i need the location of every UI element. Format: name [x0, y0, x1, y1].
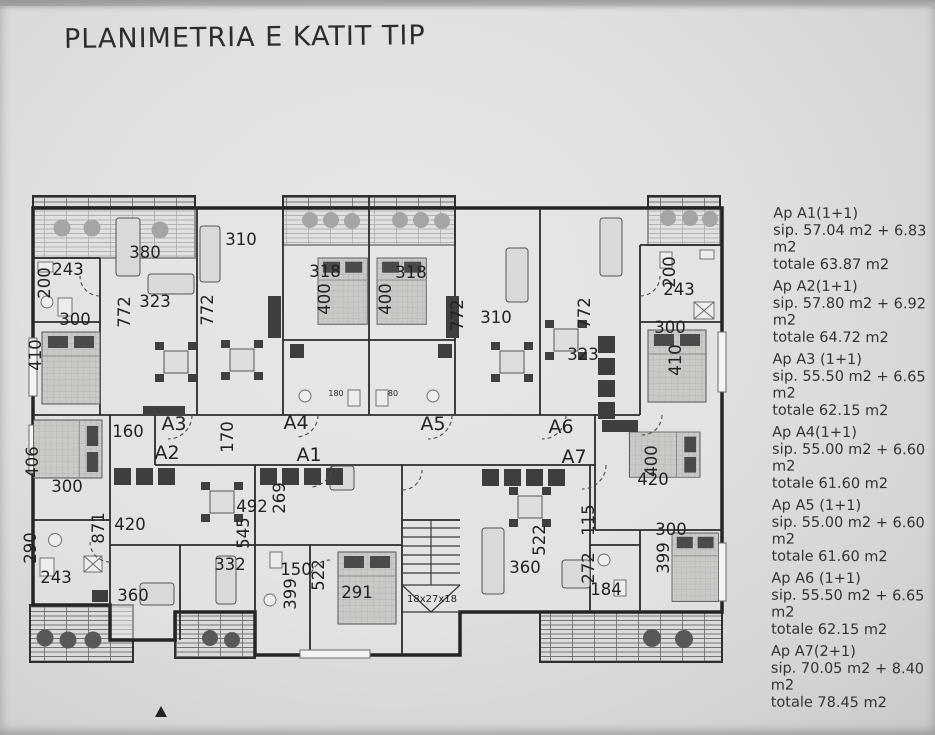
- apartment-label: A6: [548, 416, 573, 438]
- apartment-area-unit: m2: [773, 240, 933, 258]
- dimension-label: 772: [198, 294, 217, 326]
- dimension-label: 180: [328, 389, 343, 398]
- dimension-label: 400: [315, 283, 334, 315]
- dimension-label: 300: [655, 520, 687, 539]
- dimension-label: 318: [395, 263, 427, 282]
- apartment-name: Ap A6 (1+1): [771, 571, 931, 589]
- apartment-area-unit: m2: [773, 313, 933, 331]
- apartment-area: sip. 55.50 m2 + 6.65: [772, 369, 932, 387]
- apartment-area: sip. 55.50 m2 + 6.65: [771, 588, 931, 606]
- apartment-label: A3: [161, 413, 186, 435]
- apartment-total: totale 62.15 m2: [772, 403, 932, 421]
- apartment-name: Ap A5 (1+1): [772, 498, 932, 516]
- dimension-label: 300: [51, 477, 83, 496]
- dimension-label: 300: [59, 310, 91, 329]
- apartment-label: A5: [420, 413, 445, 435]
- apartment-area: sip. 57.80 m2 + 6.92: [773, 296, 933, 314]
- apartment-name: Ap A1(1+1): [773, 206, 933, 224]
- apartment-area-unit: m2: [772, 386, 932, 404]
- dimension-label: 400: [376, 283, 395, 315]
- apartment-area: sip. 55.00 m2 + 6.60: [772, 442, 932, 460]
- dimension-label: 291: [341, 583, 373, 602]
- apartment-total: totale 61.60 m2: [771, 549, 931, 567]
- apartment-total: totale 62.15 m2: [771, 622, 931, 640]
- apartment-legend: Ap A1(1+1) sip. 57.04 m2 + 6.83 m2 total…: [771, 204, 934, 718]
- dimension-label: 360: [509, 558, 541, 577]
- dimension-label: 406: [23, 446, 42, 478]
- dimension-label: 323: [139, 292, 171, 311]
- bed: [42, 332, 100, 404]
- dimension-label: 200: [35, 267, 54, 299]
- dimension-label: 323: [567, 345, 599, 364]
- dimension-label: 399: [654, 542, 673, 574]
- dimension-label: 310: [225, 230, 257, 249]
- dimension-label: 115: [579, 504, 598, 536]
- dimension-label: 410: [666, 344, 685, 376]
- dimension-label: 290: [21, 532, 40, 564]
- legend-item-a3: Ap A3 (1+1) sip. 55.50 m2 + 6.65 m2 tota…: [772, 352, 932, 421]
- dimension-label: 170: [218, 421, 237, 453]
- dimension-label: 522: [530, 524, 549, 556]
- dimension-label: 18x27x18: [407, 594, 457, 605]
- legend-item-a1: Ap A1(1+1) sip. 57.04 m2 + 6.83 m2 total…: [773, 206, 933, 275]
- apartment-name: Ap A4(1+1): [772, 425, 932, 443]
- dimension-label: 310: [480, 308, 512, 327]
- dimension-label: 871: [89, 512, 108, 544]
- dimension-label: 243: [40, 568, 72, 587]
- balcony-bottom-right: [540, 612, 722, 662]
- apartment-area-unit: m2: [771, 605, 931, 623]
- legend-item-a4: Ap A4(1+1) sip. 55.00 m2 + 6.60 m2 total…: [772, 425, 932, 494]
- bed: [34, 420, 102, 478]
- dimension-label: 410: [26, 339, 45, 371]
- dimension-label: 420: [114, 515, 146, 534]
- apartment-total: totale 78.45 m2: [771, 695, 931, 713]
- apartment-total: totale 61.60 m2: [772, 476, 932, 494]
- dimension-label: 150: [280, 560, 312, 579]
- dimension-label: 772: [448, 299, 467, 331]
- legend-item-a6: Ap A6 (1+1) sip. 55.50 m2 + 6.65 m2 tota…: [771, 571, 931, 640]
- dimension-label: 522: [309, 559, 328, 591]
- apartment-label: A7: [561, 446, 586, 468]
- dimension-label: 160: [112, 422, 144, 441]
- dimension-label: 332: [214, 555, 246, 574]
- apartment-area: sip. 57.04 m2 + 6.83: [773, 223, 933, 241]
- apartment-total: totale 63.87 m2: [773, 257, 933, 275]
- dimension-label: 243: [52, 260, 84, 279]
- photo-of-floor-plan-document: { "photo": { "title": "PLANIMETRIA E KAT…: [0, 0, 935, 735]
- apartment-label: A4: [283, 412, 308, 434]
- dimension-label: 772: [115, 296, 134, 328]
- dimension-label: 80: [388, 389, 398, 398]
- legend-item-a7: Ap A7(2+1) sip. 70.05 m2 + 8.40 m2 total…: [771, 644, 931, 713]
- legend-item-a2: Ap A2(1+1) sip. 57.80 m2 + 6.92 m2 total…: [773, 279, 933, 348]
- dimension-label: 399: [281, 578, 300, 610]
- dimension-label: 300: [654, 318, 686, 337]
- apartment-area-unit: m2: [772, 459, 932, 477]
- dimension-label: 492: [236, 497, 268, 516]
- apartment-area: sip. 55.00 m2 + 6.60: [772, 515, 932, 533]
- apartment-label: A1: [296, 444, 321, 466]
- dimension-label: 318: [309, 262, 341, 281]
- dimension-label: 269: [270, 482, 289, 514]
- apartment-name: Ap A3 (1+1): [772, 352, 932, 370]
- dimension-label: 184: [590, 580, 622, 599]
- dimension-label: 545: [234, 517, 253, 549]
- apartment-label: A2: [154, 442, 179, 464]
- apartment-area: sip. 70.05 m2 + 8.40: [771, 661, 931, 679]
- apartment-name: Ap A7(2+1): [771, 644, 931, 662]
- dimension-label: 420: [637, 470, 669, 489]
- apartment-name: Ap A2(1+1): [773, 279, 933, 297]
- legend-item-a5: Ap A5 (1+1) sip. 55.00 m2 + 6.60 m2 tota…: [771, 498, 931, 567]
- bed: [672, 533, 718, 601]
- apartment-total: totale 64.72 m2: [773, 330, 933, 348]
- apartment-area-unit: m2: [771, 678, 931, 696]
- dimension-label: 243: [663, 280, 695, 299]
- dimension-label: 380: [129, 243, 161, 262]
- dimension-label: 360: [117, 586, 149, 605]
- dimension-label: 772: [575, 297, 594, 329]
- apartment-area-unit: m2: [772, 532, 932, 550]
